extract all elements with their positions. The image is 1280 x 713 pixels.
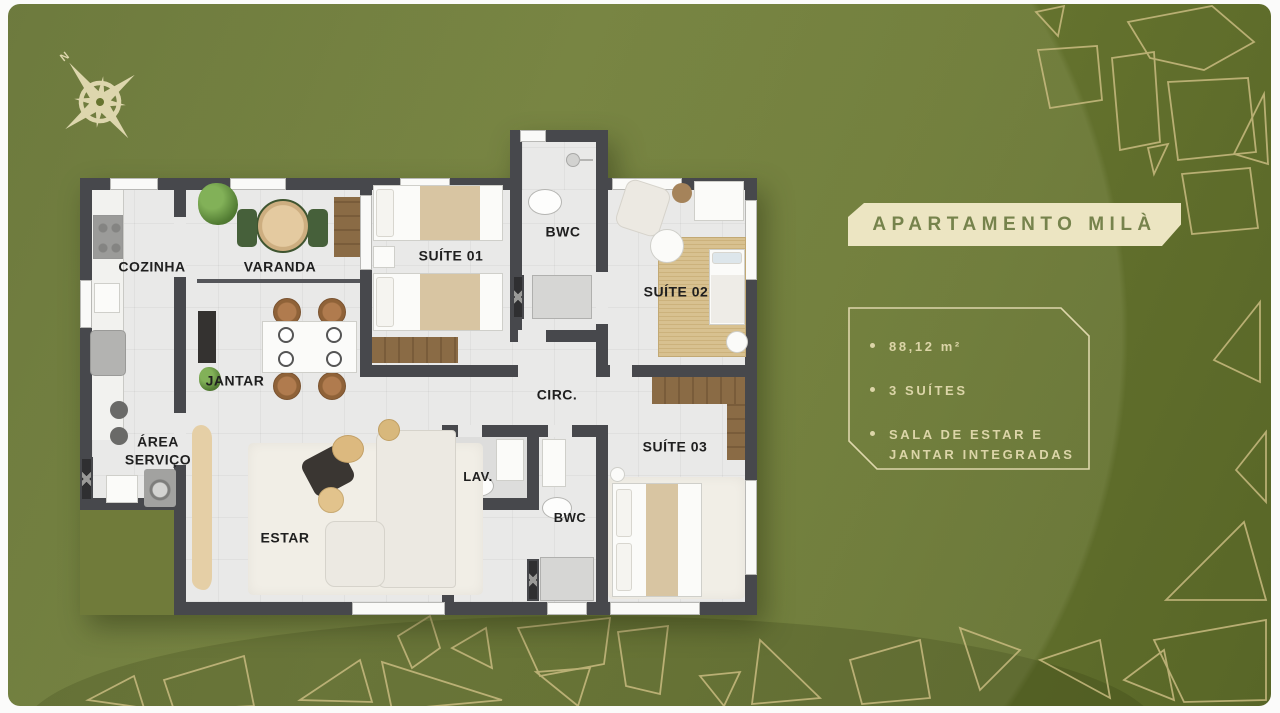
title-banner: APARTAMENTO MILÀ xyxy=(848,203,1181,246)
green-background: N APARTAMENTO MILÀ 88,12 m² 3 SUÍTES xyxy=(8,4,1271,706)
pillow-icon xyxy=(376,189,394,237)
plant-icon xyxy=(198,183,238,225)
curtain-icon xyxy=(192,425,212,590)
door-opening xyxy=(596,272,608,324)
shower-arm-icon xyxy=(579,159,593,161)
room-label-bwc-2: BWC xyxy=(554,510,587,526)
vanity-icon xyxy=(542,439,566,487)
plate-icon xyxy=(278,327,294,343)
plate-icon xyxy=(326,351,342,367)
window xyxy=(547,602,587,615)
washer-icon xyxy=(144,469,176,507)
pillow-icon xyxy=(616,543,632,591)
info-suites-text: 3 SUÍTES xyxy=(889,381,968,402)
apartment-title: APARTAMENTO MILÀ xyxy=(872,214,1156,236)
fridge-icon xyxy=(90,330,126,376)
coffee-table-icon xyxy=(332,435,364,463)
ottoman-icon xyxy=(726,331,748,353)
console-icon xyxy=(198,311,216,363)
grass-notch xyxy=(80,510,174,615)
plate-icon xyxy=(278,351,294,367)
wardrobe-icon xyxy=(372,337,458,363)
room-label-cozinha: COZINHA xyxy=(118,258,185,276)
room-label-circ: CIRC. xyxy=(537,386,578,404)
window xyxy=(110,178,158,190)
room-label-varanda: VARANDA xyxy=(244,258,316,276)
info-box: 88,12 m² 3 SUÍTES SALA DE ESTAR E JANTAR… xyxy=(848,307,1090,470)
bullet-icon xyxy=(870,387,875,392)
room-label-bwc-1: BWC xyxy=(546,223,581,241)
blanket-icon xyxy=(420,186,480,240)
wall xyxy=(360,365,518,377)
blanket-icon xyxy=(711,275,744,323)
stool-icon xyxy=(110,401,128,419)
chair-icon xyxy=(237,209,257,247)
info-integrated-text: SALA DE ESTAR E JANTAR INTEGRADAS xyxy=(889,425,1075,467)
door-opening xyxy=(518,330,546,342)
room-label-suite-02: SUÍTE 02 xyxy=(644,283,709,301)
door-opening xyxy=(548,425,572,437)
room-label-lav: LAV. xyxy=(463,469,492,485)
chair-icon xyxy=(308,209,328,247)
door-opening xyxy=(458,425,482,437)
window xyxy=(80,280,92,328)
blanket-icon xyxy=(420,274,480,330)
round-table-icon xyxy=(650,229,684,263)
window xyxy=(230,178,286,190)
louver-door-icon xyxy=(80,457,93,501)
window xyxy=(745,200,757,280)
vanity-icon xyxy=(496,439,524,481)
info-area-text: 88,12 m² xyxy=(889,337,962,358)
bullet-icon xyxy=(870,431,875,436)
louver-door-icon xyxy=(512,275,524,319)
shower-head-icon xyxy=(566,153,580,167)
wall xyxy=(596,425,608,615)
desk-icon xyxy=(694,181,744,221)
room-label-estar: ESTAR xyxy=(261,529,310,547)
pouf-icon xyxy=(672,183,692,203)
lamp-icon xyxy=(610,467,625,482)
window xyxy=(360,195,372,270)
room-label-suite-03: SUÍTE 03 xyxy=(643,438,708,456)
sideboard-icon xyxy=(334,197,360,257)
louver-door-icon xyxy=(527,559,539,601)
bullet-icon xyxy=(870,343,875,348)
room-label-suite-01: SUÍTE 01 xyxy=(419,247,484,265)
pillow-icon xyxy=(712,252,742,264)
floor-bwc1 xyxy=(522,142,596,190)
side-table-icon xyxy=(378,419,400,441)
laundry-sink-icon xyxy=(106,475,138,503)
info-item-area: 88,12 m² xyxy=(870,337,1080,358)
wardrobe-icon xyxy=(652,377,745,404)
plate-icon xyxy=(326,327,342,343)
shower-stall-icon xyxy=(532,275,592,319)
floor-plan: COZINHA VARANDA JANTAR ÁREA SERVIÇO ESTA… xyxy=(80,125,757,615)
info-item-integrated: SALA DE ESTAR E JANTAR INTEGRADAS xyxy=(870,425,1080,467)
dining-chair-icon xyxy=(318,372,346,400)
nightstand-icon xyxy=(373,246,395,268)
varanda-rail xyxy=(197,279,360,283)
window xyxy=(610,602,700,615)
brochure-page: N APARTAMENTO MILÀ 88,12 m² 3 SUÍTES xyxy=(0,0,1280,713)
shower-stall-icon xyxy=(540,557,594,601)
window xyxy=(520,130,546,142)
window xyxy=(745,480,757,575)
toilet-icon xyxy=(528,189,562,215)
sofa-icon xyxy=(376,430,456,588)
door-opening xyxy=(610,365,632,377)
room-label-jantar: JANTAR xyxy=(206,372,265,390)
window xyxy=(352,602,445,615)
dining-chair-icon xyxy=(273,372,301,400)
info-item-suites: 3 SUÍTES xyxy=(870,381,1080,402)
dining-table-icon xyxy=(262,321,357,373)
coffee-table-icon xyxy=(318,487,344,513)
wardrobe-icon xyxy=(727,404,745,460)
room-label-area-servico: ÁREA SERVIÇO xyxy=(125,434,191,469)
round-table-icon xyxy=(256,199,310,253)
pillow-icon xyxy=(376,277,394,327)
kitchen-sink-icon xyxy=(94,283,120,313)
stove-icon xyxy=(93,215,123,259)
pillow-icon xyxy=(616,489,632,537)
chaise-icon xyxy=(325,521,385,587)
blanket-icon xyxy=(646,484,678,596)
compass-north-label: N xyxy=(58,50,72,64)
